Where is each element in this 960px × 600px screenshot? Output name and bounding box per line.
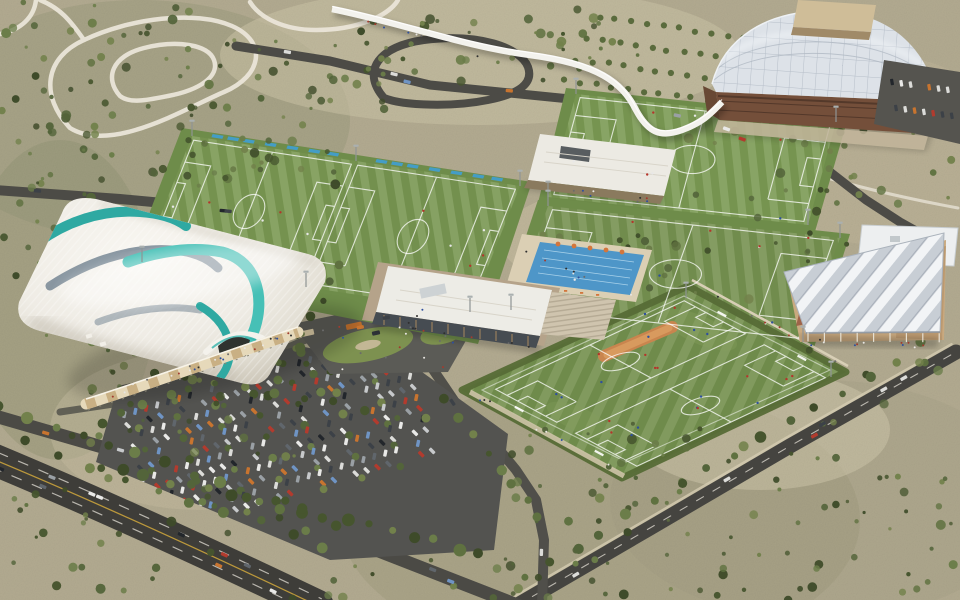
- sports-campus-scene: Aerial rendering of a desert sports trai…: [0, 0, 960, 600]
- service-building: service building: [791, 0, 876, 40]
- aerial-render: Aerial rendering of a desert sports trai…: [0, 0, 960, 600]
